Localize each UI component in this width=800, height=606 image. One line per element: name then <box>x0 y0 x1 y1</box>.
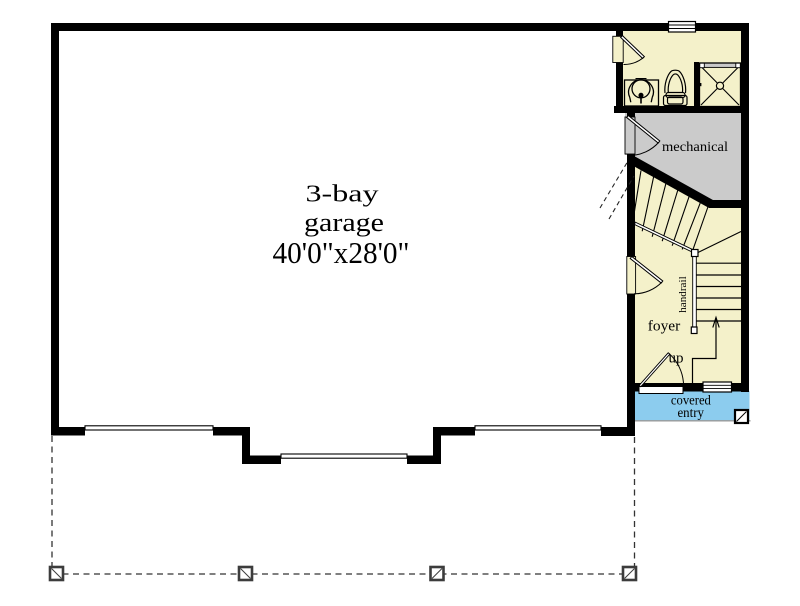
svg-text:entry: entry <box>677 405 704 420</box>
svg-text:handrail: handrail <box>677 276 689 313</box>
svg-text:3-bay: 3-bay <box>306 182 379 208</box>
svg-text:mechanical: mechanical <box>662 140 728 155</box>
svg-text:40'0"x28'0": 40'0"x28'0" <box>273 236 410 270</box>
svg-text:up: up <box>669 351 684 367</box>
svg-text:foyer: foyer <box>648 319 681 335</box>
svg-text:garage: garage <box>304 208 384 237</box>
